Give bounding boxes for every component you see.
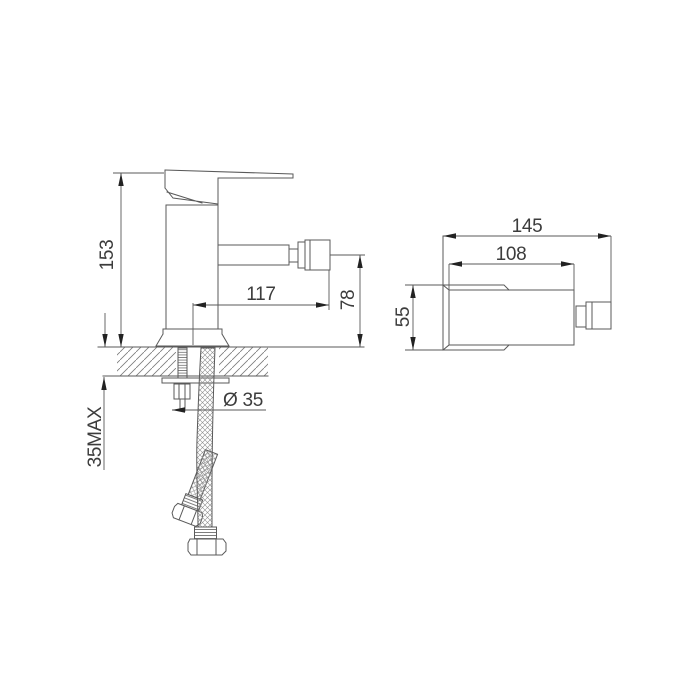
technical-drawing-sheet: 153 117 78 35MAX	[0, 0, 700, 700]
arrow-right	[561, 261, 574, 266]
arrow-left	[443, 233, 456, 238]
arrow-up	[101, 377, 106, 390]
dim-label-35max: 35MAX	[85, 406, 106, 467]
faucet-body	[156, 205, 229, 346]
lever-handle	[165, 170, 293, 205]
left-chamfers	[443, 285, 449, 350]
dimension-153: 153	[97, 173, 164, 347]
washer-plate	[162, 378, 229, 383]
arrow-up	[357, 255, 362, 268]
dimension-145: 145	[443, 216, 611, 302]
arrow-left	[193, 302, 206, 307]
front-view: 153 117 78 35MAX	[85, 170, 365, 555]
dimension-35max: 35MAX	[85, 313, 108, 470]
aerator-body	[305, 240, 330, 270]
mounting-nut	[174, 384, 190, 411]
deck-hatch-left	[117, 347, 176, 376]
aerator-body-top	[586, 302, 611, 329]
faucet-dimension-drawing: 153 117 78 35MAX	[0, 0, 700, 700]
arrow-down	[102, 334, 107, 347]
mounting-nut-body	[174, 384, 190, 399]
ext-lines	[449, 264, 574, 290]
dim-label-117: 117	[246, 284, 275, 305]
top-view: 145 108 55	[393, 216, 611, 350]
outer-shell	[443, 285, 509, 350]
arrow-right	[316, 302, 329, 307]
arrow-down	[357, 334, 362, 347]
dimension-78: 78	[330, 255, 365, 347]
top-view-body	[443, 236, 611, 350]
aerator-neck-top	[576, 306, 586, 327]
spout-neck-ring	[289, 249, 298, 262]
dim-label-108: 108	[496, 244, 527, 265]
mounting-deck	[98, 347, 364, 376]
dim-label-145: 145	[512, 216, 543, 237]
dim-label-78: 78	[338, 290, 359, 311]
body-cylinder	[166, 205, 218, 329]
arrow-up	[410, 285, 415, 298]
main-hose-nut	[188, 539, 226, 555]
dimension-117: 117	[193, 270, 329, 345]
lever-base-wedge	[165, 170, 218, 204]
base-flare	[156, 329, 229, 346]
dim-label-55: 55	[393, 307, 414, 328]
arrow-left	[172, 407, 185, 412]
arrow-up	[118, 173, 123, 186]
main-hose-collar	[195, 527, 217, 539]
dim-label-153: 153	[97, 240, 118, 271]
aerator-flange	[298, 242, 305, 268]
spout-tube	[218, 245, 289, 265]
main-hose-braid	[197, 348, 215, 527]
barrel-rect	[449, 290, 574, 345]
arrow-down	[410, 337, 415, 350]
deck-hatch-right	[219, 347, 268, 376]
spout	[218, 240, 330, 270]
arrow-right	[598, 233, 611, 238]
arrow-left	[449, 261, 462, 266]
dimension-108: 108	[449, 244, 574, 290]
dimension-55: 55	[393, 285, 443, 350]
dim-label-hole-diameter: Ø 35	[223, 390, 263, 411]
arrow-down	[118, 334, 123, 347]
